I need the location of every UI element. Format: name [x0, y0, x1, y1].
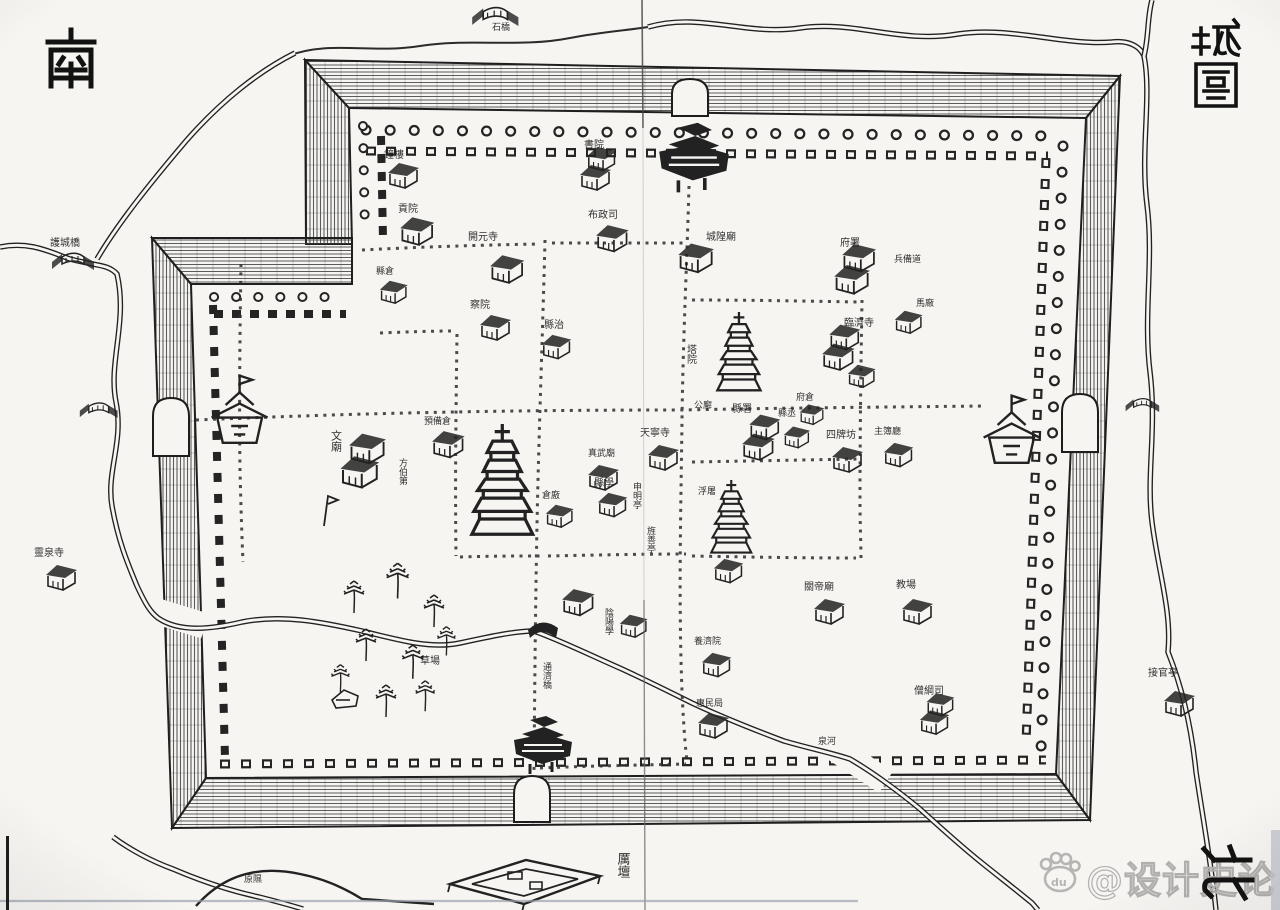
vignette	[0, 0, 1280, 910]
woodblock-city-map-page: 護城橋石橋靈泉寺接官亭厲壇原隰泉河鐘樓貢院縣倉開元寺察院縣治書院布政司城隍廟府署…	[0, 0, 1280, 910]
map-canvas: 護城橋石橋靈泉寺接官亭厲壇原隰泉河鐘樓貢院縣倉開元寺察院縣治書院布政司城隍廟府署…	[0, 0, 1280, 910]
scan-artifacts	[0, 0, 1280, 910]
